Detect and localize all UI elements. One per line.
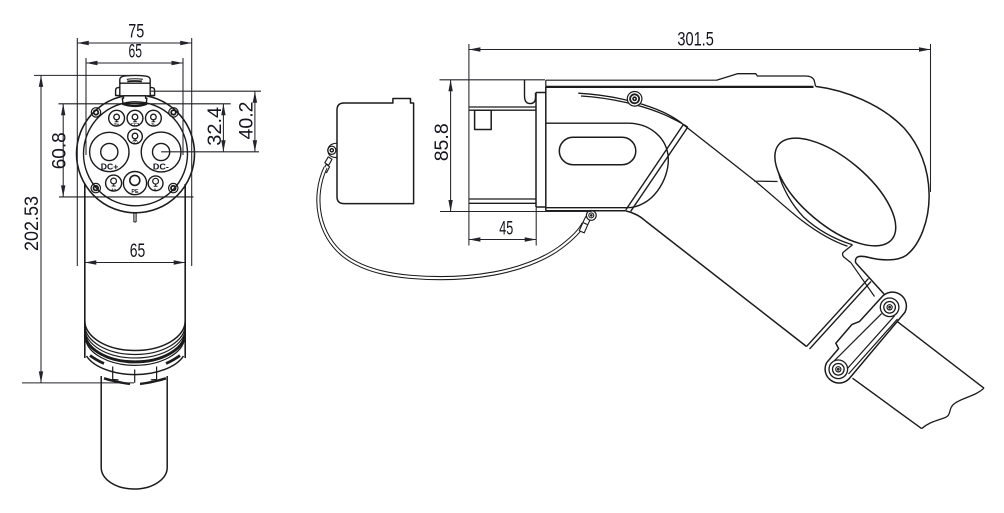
- svg-text:60.8: 60.8: [50, 132, 71, 169]
- svg-text:85.8: 85.8: [432, 123, 453, 161]
- svg-text:65: 65: [130, 241, 146, 262]
- svg-text:32.4: 32.4: [205, 106, 226, 145]
- svg-text:40.2: 40.2: [236, 102, 257, 140]
- svg-text:65: 65: [128, 42, 142, 63]
- svg-text:301.5: 301.5: [677, 30, 714, 51]
- svg-text:A+: A+: [111, 187, 117, 192]
- svg-text:S-: S-: [151, 122, 156, 127]
- svg-text:S+: S+: [114, 122, 120, 127]
- svg-text:DC-: DC-: [153, 163, 169, 172]
- svg-text:PE: PE: [131, 189, 139, 195]
- svg-text:DC+: DC+: [101, 163, 119, 172]
- svg-text:CC1: CC1: [131, 141, 139, 145]
- svg-text:202.53: 202.53: [22, 196, 43, 251]
- svg-text:CC2: CC2: [131, 122, 140, 127]
- svg-text:A-: A-: [153, 187, 158, 192]
- svg-text:75: 75: [128, 21, 144, 42]
- svg-text:45: 45: [499, 219, 513, 240]
